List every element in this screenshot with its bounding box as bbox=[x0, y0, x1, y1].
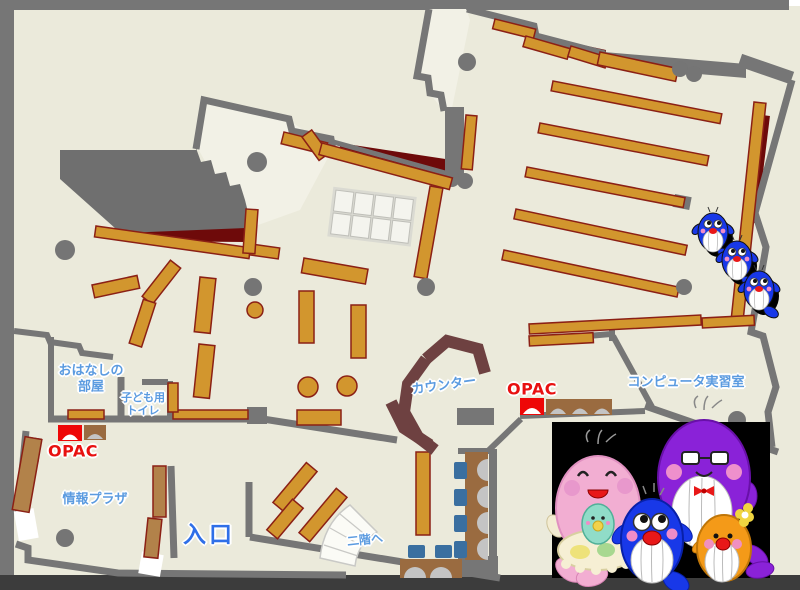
label-computer-room: コンピュータ実習室 bbox=[627, 375, 744, 391]
opac-terminal-center bbox=[520, 398, 612, 415]
label-kids-toilet: 子ども用 トイレ bbox=[121, 391, 165, 417]
label-kids-toilet-line2: トイレ bbox=[127, 404, 160, 417]
label-entrance: 入口 bbox=[183, 522, 235, 550]
label-kids-toilet-line1: 子ども用 bbox=[121, 391, 165, 404]
label-story-room-line2: 部屋 bbox=[78, 379, 104, 394]
mascot-photo bbox=[543, 396, 775, 590]
label-opac-left: OPAC bbox=[48, 441, 98, 460]
opac-terminal-left bbox=[58, 425, 106, 441]
label-story-room: おはなしの 部屋 bbox=[58, 363, 123, 394]
study-table-grid bbox=[327, 187, 416, 247]
library-floor-map: おはなしの 部屋 子ども用 トイレ OPAC 情報プラザ 入口 カウンター OP… bbox=[0, 0, 800, 590]
label-story-room-line1: おはなしの bbox=[58, 363, 123, 378]
mascot-baby-whale bbox=[582, 504, 614, 544]
label-info-plaza: 情報プラザ bbox=[62, 492, 127, 508]
label-opac-center: OPAC bbox=[507, 379, 557, 398]
